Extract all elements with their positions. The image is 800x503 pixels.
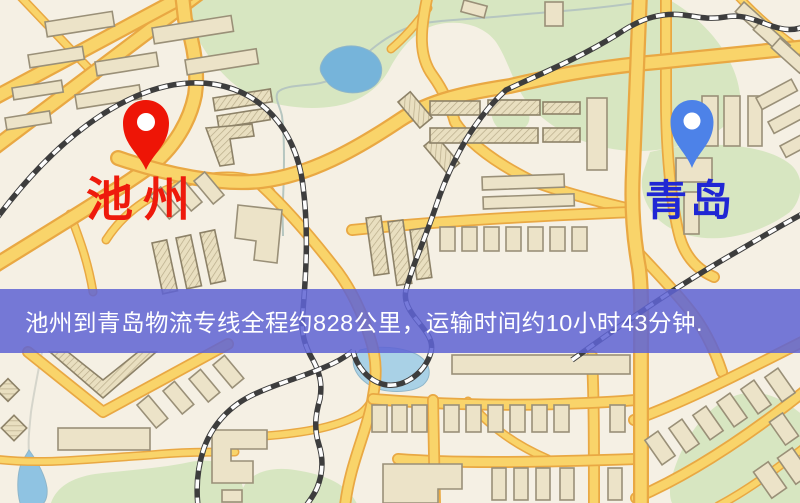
- destination-pin-icon[interactable]: [664, 88, 720, 172]
- origin-pin-hole: [137, 113, 155, 131]
- route-banner: 池州到青岛物流专线全程约828公里，运输时间约10小时43分钟.: [0, 289, 800, 353]
- map-canvas[interactable]: [0, 0, 800, 503]
- origin-pin-icon[interactable]: [118, 90, 174, 174]
- destination-pin-shape: [671, 100, 714, 168]
- origin-pin-shape: [123, 100, 169, 170]
- destination-city-label: 青岛: [645, 181, 735, 223]
- map-screenshot: 池州到青岛物流专线全程约828公里，运输时间约10小时43分钟. 池州 青岛: [0, 0, 800, 503]
- route-banner-text: 池州到青岛物流专线全程约828公里，运输时间约10小时43分钟.: [25, 304, 703, 338]
- destination-pin-hole: [684, 113, 701, 130]
- origin-city-label: 池州: [86, 178, 200, 225]
